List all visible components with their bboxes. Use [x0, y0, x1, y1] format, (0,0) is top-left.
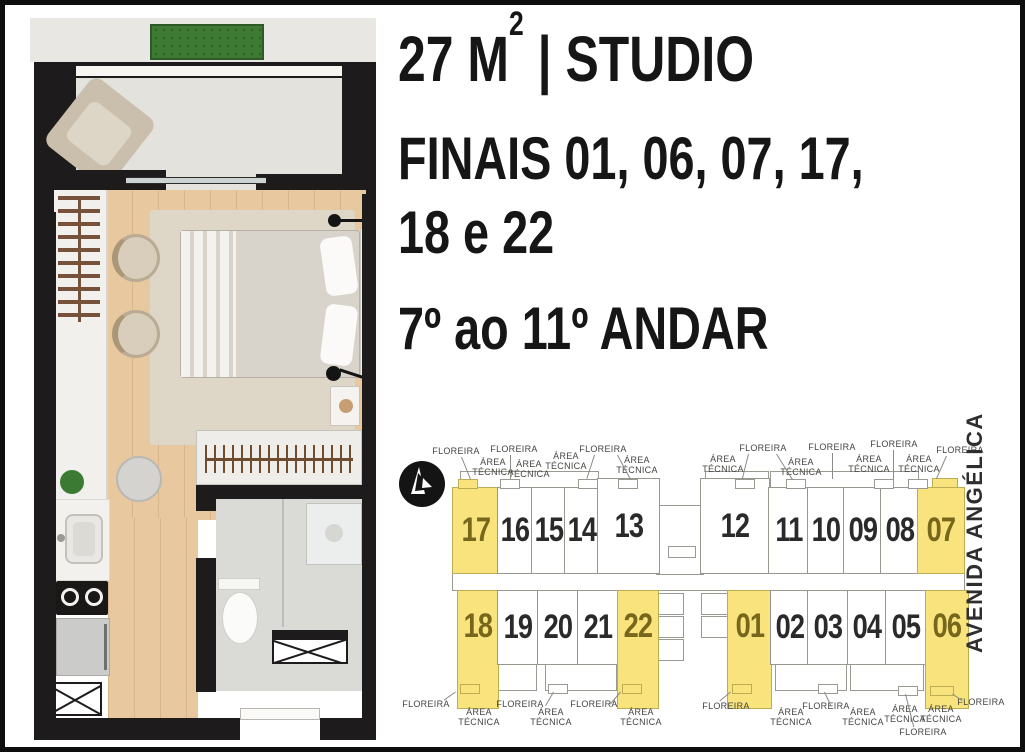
- unit-number: 19: [504, 608, 533, 647]
- unit-number: 04: [853, 608, 882, 647]
- unit-number: 01: [735, 607, 764, 646]
- floreira-tab: [458, 479, 478, 489]
- unit-number: 10: [812, 511, 841, 550]
- wall-bathroom-left: [196, 499, 216, 511]
- floorplan-sheet: 27 M2 | STUDIO FINAIS 01, 06, 07, 17, 18…: [0, 0, 1025, 752]
- shaft-wall: [272, 630, 348, 638]
- floreira-tab: [460, 684, 480, 694]
- floreira-label: FLOREIRA: [806, 443, 858, 453]
- technical-shaft: [272, 638, 348, 664]
- wall-right: [362, 194, 376, 720]
- floreira-tab: [500, 479, 520, 489]
- fridge-handle: [104, 624, 107, 670]
- floreira-tab: [908, 479, 928, 489]
- area-tecnica-label: ÁREA TÉCNICA: [914, 705, 968, 724]
- floors-range: 7º ao 11º ANDAR: [398, 294, 769, 363]
- unit-number: 11: [775, 511, 802, 550]
- unit-number: 06: [933, 607, 962, 646]
- street-label: AVENIDA ANGÉLICA: [962, 438, 988, 653]
- keyplan-unit-13: 13: [597, 478, 660, 574]
- core-box: [701, 616, 728, 638]
- floreira-label: FLOREIRA: [430, 447, 482, 457]
- keyplan-unit-03: 03: [807, 590, 849, 665]
- unit-number: 03: [814, 608, 843, 647]
- keyplan-unit-12: 12: [700, 478, 770, 574]
- corridor: [452, 573, 965, 591]
- area-tecnica-label: ÁREA TÉCNICA: [614, 708, 668, 727]
- floreira-tab: [786, 479, 806, 489]
- sliding-glass-door: [126, 177, 266, 184]
- sink-counter: [52, 499, 110, 581]
- toilet: [222, 592, 258, 644]
- unit-number: 22: [624, 607, 653, 646]
- toilet-tank: [218, 578, 260, 590]
- floors-heading: 7º ao 11º ANDAR: [398, 294, 873, 363]
- floreira-tab: [818, 684, 838, 694]
- keyplan-unit-02: 02: [770, 590, 809, 665]
- area-superscript: 2: [509, 5, 524, 43]
- wall-bathroom-top: [196, 485, 376, 499]
- floreira-label: FLOREIRA: [488, 445, 540, 455]
- keyplan-unit-07: 07: [917, 487, 965, 574]
- unit-number: 16: [501, 511, 530, 550]
- sink-basin: [73, 522, 95, 556]
- core-top: [656, 505, 704, 575]
- keyplan-unit-21: 21: [577, 590, 619, 665]
- keyplan-unit-08: 08: [880, 487, 919, 574]
- finais-line2: 18 e 22: [398, 196, 864, 270]
- unit-number: 17: [461, 511, 490, 550]
- area-value: 27 M: [398, 23, 509, 95]
- unit-number: 14: [567, 511, 596, 550]
- armchair-seat: [64, 99, 135, 169]
- unit-number: 13: [614, 507, 643, 546]
- keyplan-unit-15: 15: [531, 487, 566, 574]
- floreira-tab: [732, 684, 752, 694]
- finais-heading: FINAIS 01, 06, 07, 17, 18 e 22: [398, 122, 995, 270]
- keyplan-unit-20: 20: [537, 590, 579, 665]
- leader-line: [832, 453, 833, 479]
- floreira-tab: [578, 479, 598, 489]
- core-box: [701, 593, 728, 615]
- floreira-tab: [874, 479, 894, 489]
- leader-line: [893, 450, 894, 479]
- shower-head: [325, 524, 343, 542]
- floreira-tab: [618, 479, 638, 489]
- keyplan-unit-19: 19: [497, 590, 539, 665]
- floreira-label: FLOREIRA: [700, 702, 752, 712]
- burner: [85, 588, 103, 606]
- nightstand: [330, 386, 360, 426]
- planter-box: [150, 24, 264, 60]
- wall-bathroom-left: [196, 558, 216, 692]
- unit-number: 08: [885, 511, 914, 550]
- keyplan-unit-17: 17: [452, 487, 499, 574]
- floreira-label: FLOREIRA: [400, 700, 452, 710]
- keyplan-unit-09: 09: [843, 487, 882, 574]
- wall-lamp-arm: [339, 219, 363, 222]
- core-box: [657, 616, 684, 638]
- unit-number: 18: [464, 607, 493, 646]
- chair: [112, 234, 160, 282]
- balcony-railing: [72, 62, 344, 78]
- floreira-tab: [898, 686, 918, 696]
- bed-folded-blanket: [181, 231, 236, 377]
- keyplan-unit-11: 11: [768, 487, 809, 574]
- chair: [112, 310, 160, 358]
- nightstand-object: [339, 399, 353, 413]
- shower: [306, 503, 362, 565]
- keyplan-unit-04: 04: [847, 590, 887, 665]
- north-arrow-logo: [398, 460, 446, 508]
- unit-number: 21: [584, 608, 613, 647]
- area-tecnica-label: ÁREA TÉCNICA: [696, 455, 750, 474]
- burner: [61, 588, 79, 606]
- wall-bottom-left: [34, 718, 240, 740]
- studio-floorplan: [30, 18, 378, 742]
- wall-bottom-right: [320, 718, 376, 740]
- unit-number: 09: [848, 511, 877, 550]
- core-box: [657, 639, 684, 661]
- core-box: [657, 593, 684, 615]
- floreira-tab: [930, 686, 954, 696]
- floreira-label: FLOREIRA: [897, 728, 949, 738]
- cooktop: [56, 581, 108, 615]
- plant: [60, 470, 84, 494]
- keyplan-unit-14: 14: [564, 487, 599, 574]
- unit-number: 07: [927, 511, 956, 550]
- unit-number: 15: [534, 511, 563, 550]
- area-tecnica-label: ÁREA TÉCNICA: [539, 452, 593, 471]
- floreira-tab: [622, 684, 642, 694]
- floreira-label: FLOREIRA: [868, 440, 920, 450]
- page-title: 27 M2 | STUDIO: [398, 22, 854, 96]
- wall-left: [34, 212, 56, 722]
- floreira-tab: [548, 684, 568, 694]
- keyplan-unit-10: 10: [807, 487, 845, 574]
- kitchen-sink: [65, 514, 103, 564]
- entry-door: [240, 708, 320, 720]
- side-table: [116, 456, 162, 502]
- unit-number: 02: [775, 608, 804, 647]
- floreira-tab: [932, 478, 958, 488]
- unit-number: 12: [721, 507, 750, 546]
- floreira-label: FLOREIRA: [955, 698, 1007, 708]
- area-tecnica-label: ÁREA TÉCNICA: [774, 458, 828, 477]
- unit-number: 20: [544, 608, 573, 647]
- hanger-rail: [205, 445, 353, 473]
- wardrobe: [196, 430, 362, 485]
- faucet: [57, 534, 65, 542]
- elevator: [668, 546, 696, 558]
- floreira-label: FLOREIRA: [737, 444, 789, 454]
- floreira-tab: [735, 479, 755, 489]
- leader-line: [510, 455, 511, 479]
- finais-line1: FINAIS 01, 06, 07, 17,: [398, 122, 864, 196]
- area-tecnica-label: ÁREA TÉCNICA: [524, 708, 578, 727]
- shower-glass: [282, 499, 284, 627]
- floreira-label: FLOREIRA: [577, 445, 629, 455]
- unit-number: 05: [892, 608, 921, 647]
- area-tecnica-label: ÁREA TÉCNICA: [842, 455, 896, 474]
- area-tecnica-label: ÁREA TÉCNICA: [452, 708, 506, 727]
- ladder-shelf: [58, 196, 100, 322]
- hallway-floor: [108, 518, 198, 718]
- wall-lamp: [326, 366, 341, 381]
- keyplan-unit-05: 05: [885, 590, 927, 665]
- keyplan-unit-16: 16: [497, 487, 533, 574]
- fridge: [56, 618, 110, 676]
- unit-type: | STUDIO: [524, 23, 754, 95]
